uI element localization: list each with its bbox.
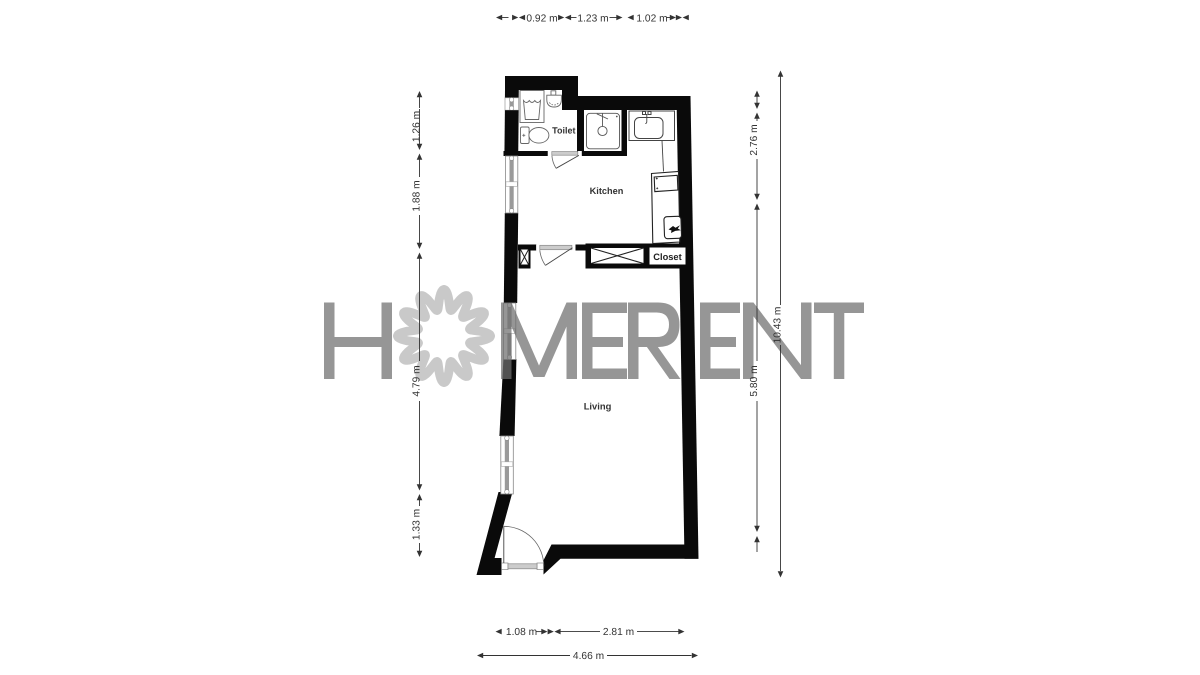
svg-text:1.88 m: 1.88 m	[412, 180, 423, 211]
svg-text:Toilet: Toilet	[552, 126, 575, 136]
svg-text:10.43 m: 10.43 m	[773, 307, 784, 344]
svg-text:2.81 m: 2.81 m	[603, 627, 634, 638]
svg-text:1.26 m: 1.26 m	[412, 111, 423, 142]
svg-text:4.79 m: 4.79 m	[412, 365, 423, 396]
svg-text:4.66 m: 4.66 m	[573, 651, 604, 662]
svg-text:Closet: Closet	[653, 252, 681, 262]
svg-text:Living: Living	[584, 401, 612, 412]
svg-text:Kitchen: Kitchen	[590, 186, 624, 196]
svg-text:1.33 m: 1.33 m	[412, 509, 423, 540]
svg-text:1.23 m: 1.23 m	[577, 14, 608, 25]
svg-text:5.80 m: 5.80 m	[749, 365, 760, 396]
svg-text:2.76 m: 2.76 m	[749, 124, 760, 155]
svg-text:1.02 m: 1.02 m	[636, 14, 667, 25]
svg-text:0.92 m: 0.92 m	[526, 14, 557, 25]
svg-text:1.08 m: 1.08 m	[506, 627, 537, 638]
